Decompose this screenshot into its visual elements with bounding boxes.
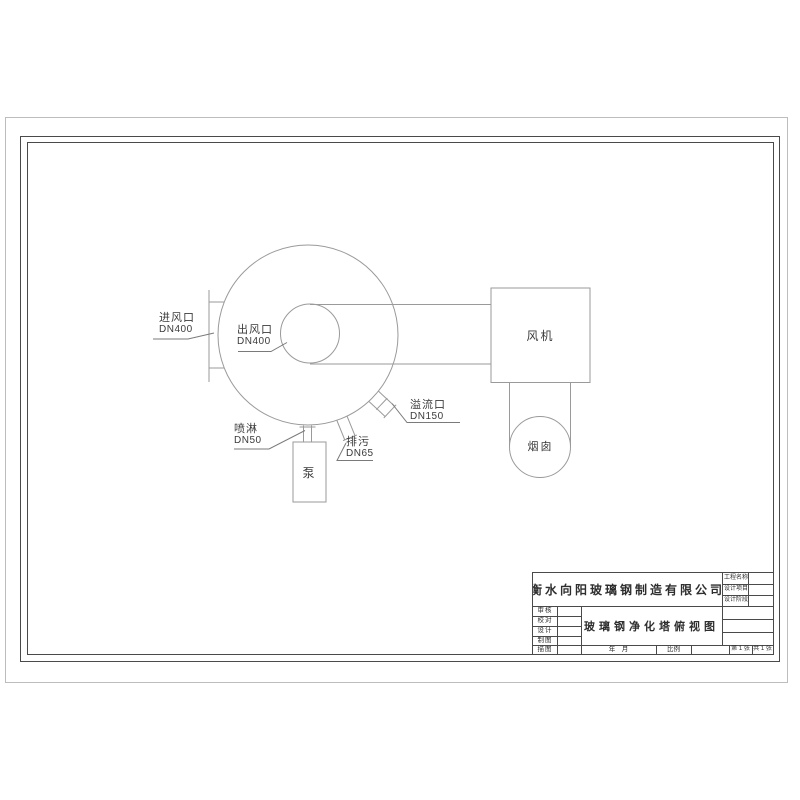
inlet-label: 进风口 (159, 312, 195, 324)
field-design-stage: 设计阶段 (722, 595, 750, 606)
spray-callout: 喷淋 DN50 (234, 423, 262, 446)
drain-label: 排污 (346, 436, 374, 448)
chimney-label: 烟囱 (510, 438, 571, 454)
titleblock-rule (722, 632, 773, 633)
pump-label: 泵 (293, 442, 326, 502)
drain-dn-value: DN65 (346, 448, 374, 459)
field-scale: 比例 (656, 645, 691, 654)
field-checker: 校对 (533, 616, 557, 626)
outlet-dn-value: DN400 (237, 336, 273, 347)
inlet-dn-value: DN400 (159, 324, 195, 335)
field-reviewer: 审核 (533, 606, 557, 616)
field-date: 年 月 (581, 645, 656, 654)
field-tracer: 描图 (533, 645, 557, 654)
field-sheet-total: 共 1 张 (752, 645, 773, 654)
overflow-dn-value: DN150 (410, 411, 446, 422)
field-designer: 设计 (533, 626, 557, 636)
outlet-label: 出风口 (237, 324, 273, 336)
engineering-drawing-canvas: 进风口 DN400 出风口 DN400 喷淋 DN50 排污 DN65 溢流口 … (0, 0, 800, 800)
outlet-callout: 出风口 DN400 (237, 324, 273, 347)
drain-callout: 排污 DN65 (346, 436, 374, 459)
field-project-name: 工程名称 (722, 573, 750, 584)
titleblock-rule (691, 645, 692, 654)
company-name: 衡水向阳玻璃钢制造有限公司 (533, 573, 722, 606)
field-drafter: 制图 (533, 636, 557, 645)
spray-dn-value: DN50 (234, 435, 262, 446)
titleblock-rule (557, 606, 558, 654)
title-block: 衡水向阳玻璃钢制造有限公司 玻璃钢净化塔俯视图 工程名称 设计项目 设计阶段 审… (532, 572, 774, 655)
fan-label: 风机 (491, 288, 590, 382)
field-sheet-number: 第 1 张 (729, 645, 752, 654)
drain-stub-line-1 (337, 421, 345, 440)
plan-view-drawing (0, 0, 800, 800)
spray-label: 喷淋 (234, 423, 262, 435)
field-design-item: 设计项目 (722, 584, 750, 595)
overflow-callout: 溢流口 DN150 (410, 399, 446, 422)
drain-stub-line-2 (347, 416, 355, 435)
overflow-stub-mid-flange (376, 398, 387, 410)
inlet-callout: 进风口 DN400 (159, 312, 195, 335)
overflow-label: 溢流口 (410, 399, 446, 411)
outlet-inner-circle (281, 304, 340, 363)
titleblock-rule (722, 619, 773, 620)
drawing-title: 玻璃钢净化塔俯视图 (581, 606, 722, 645)
